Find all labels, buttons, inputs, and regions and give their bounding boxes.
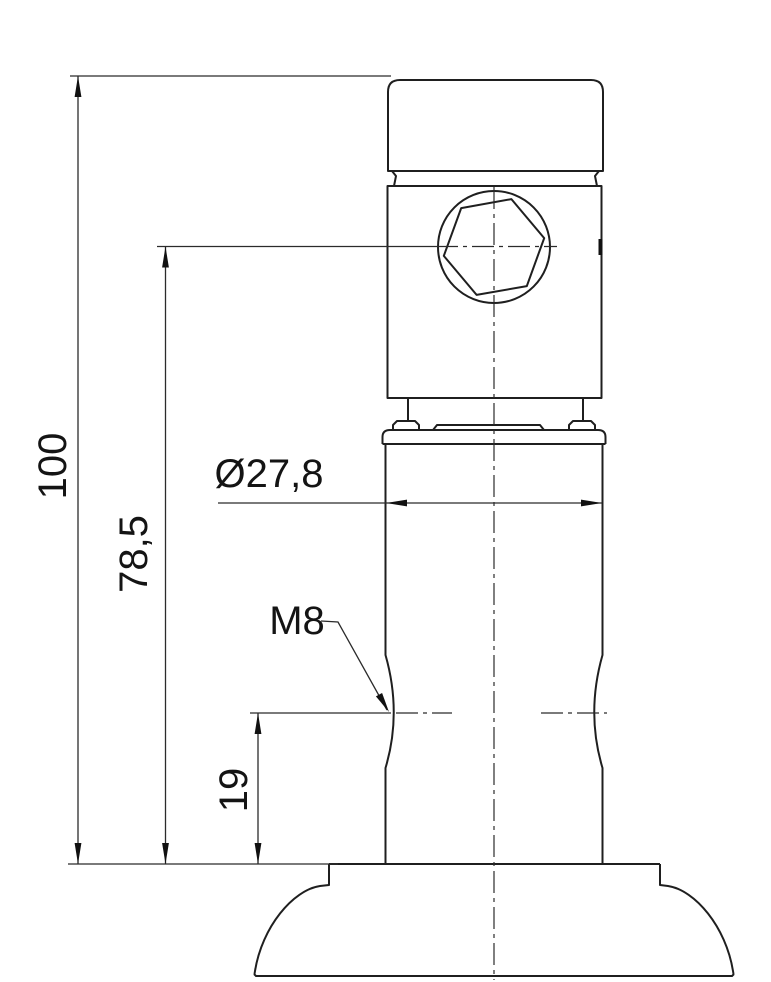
cylinder-right-edge: [594, 444, 602, 864]
thread-callout: M8: [269, 599, 389, 712]
flange-right-foot: [569, 421, 595, 430]
cap-band-left-notch: [392, 171, 396, 186]
arrowhead-78-top: [162, 247, 169, 268]
drawing-canvas: 100 78,5 19 Ø27,8 M8: [0, 0, 771, 982]
cup-left-bell: [255, 864, 330, 974]
dimension-overall-height: 100: [31, 76, 81, 864]
m8-leader-arrowhead: [376, 693, 389, 712]
m8-label: M8: [269, 599, 325, 643]
technical-drawing-svg: 100 78,5 19 Ø27,8 M8: [0, 0, 771, 982]
dim-label-diameter: Ø27,8: [215, 452, 324, 496]
center-lines: [396, 187, 607, 980]
cap-band-right-notch: [595, 171, 599, 186]
top-cap-outline: [388, 80, 603, 171]
cup-lip-bottom-edge: [254, 974, 734, 976]
arrowhead-100-top: [75, 76, 82, 97]
arrowhead-diameter-right: [581, 500, 602, 507]
dimension-thread-height: 19: [212, 713, 261, 864]
dimensions: 100 78,5 19 Ø27,8 M8: [31, 76, 602, 864]
arrowhead-diameter-left: [386, 500, 407, 507]
flange-left-foot: [393, 421, 419, 430]
dim-label-100: 100: [31, 433, 75, 500]
cup-right-bell: [660, 864, 734, 974]
cylinder-left-edge: [386, 444, 394, 864]
dim-label-78: 78,5: [112, 515, 156, 593]
arrowhead-78-bottom: [162, 843, 169, 864]
arrowhead-19-top: [255, 713, 262, 734]
dim-label-19: 19: [212, 768, 256, 813]
dimension-hex-center-height: 78,5: [112, 247, 169, 865]
dimension-body-diameter: Ø27,8: [215, 452, 602, 506]
arrowhead-19-bottom: [255, 843, 262, 864]
arrowhead-100-bottom: [75, 843, 82, 864]
